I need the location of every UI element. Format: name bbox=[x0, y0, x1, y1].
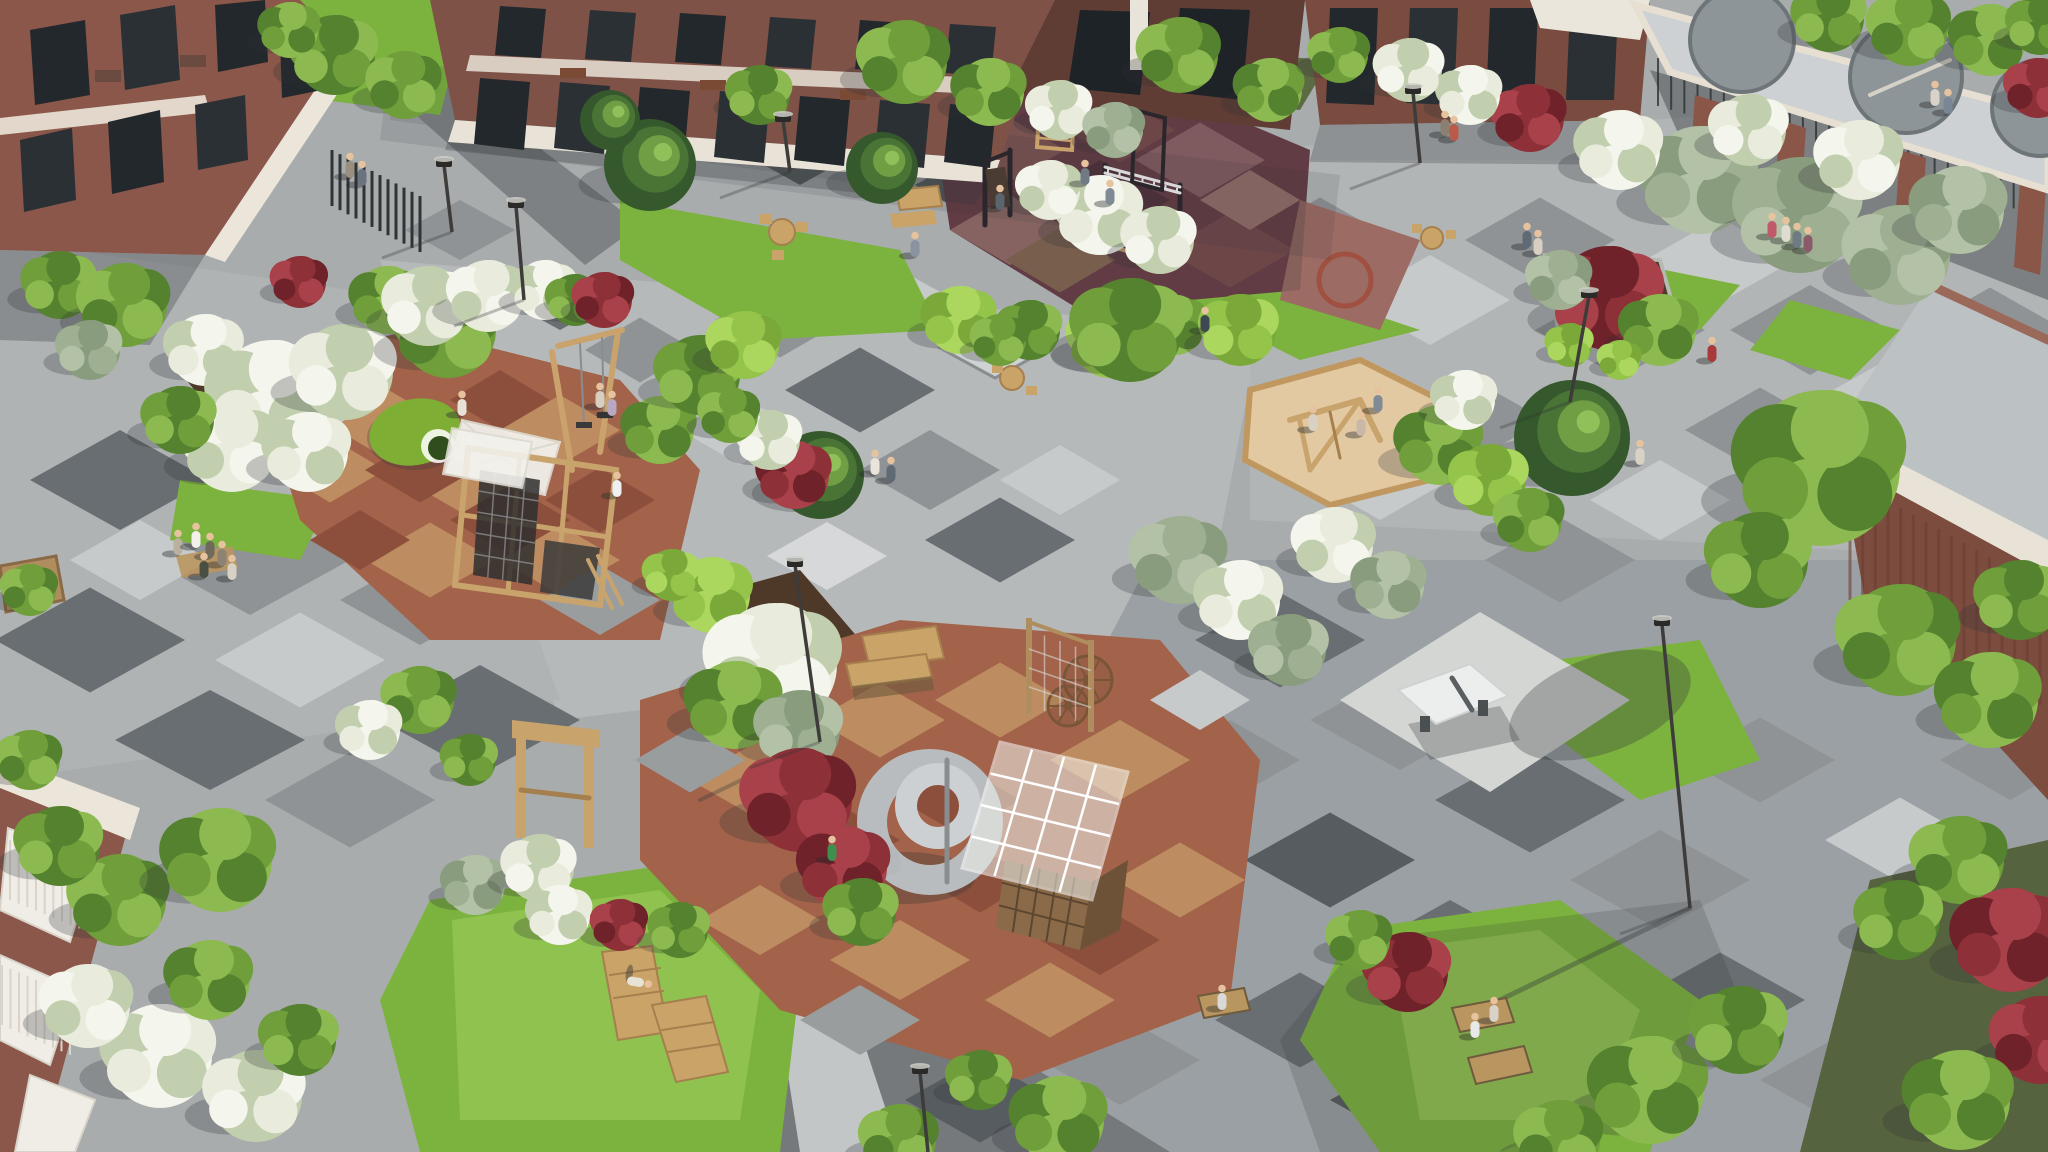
courtyard-render-svg bbox=[0, 0, 2048, 1152]
courtyard-aerial-view bbox=[0, 0, 2048, 1152]
